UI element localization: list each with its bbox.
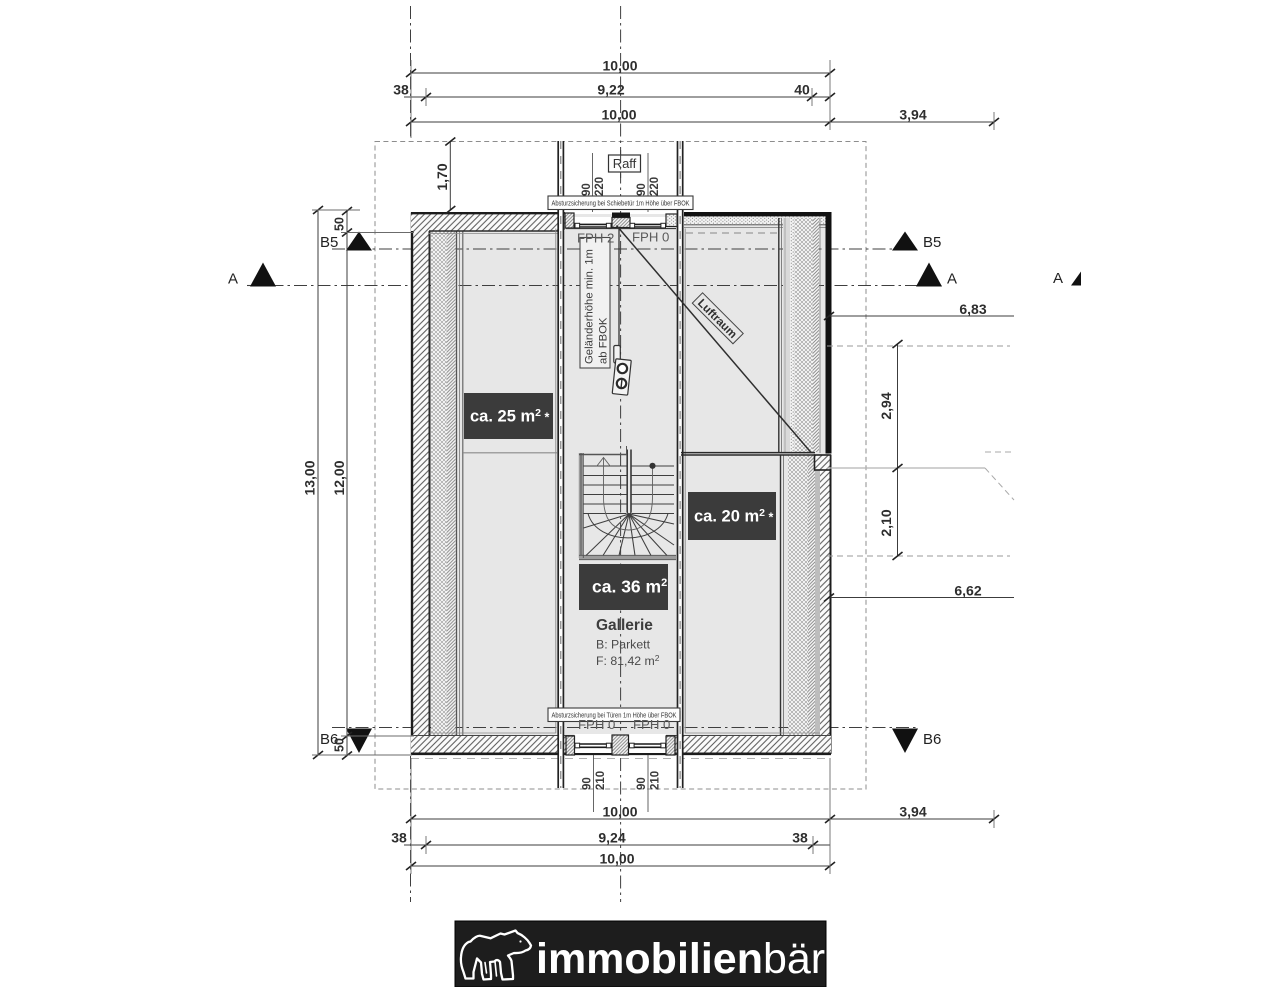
svg-text:9,24: 9,24	[598, 830, 625, 846]
svg-text:10,00: 10,00	[601, 107, 636, 123]
svg-text:F: 81,42 m2: F: 81,42 m2	[596, 653, 660, 668]
svg-text:90: 90	[636, 777, 648, 790]
svg-text:ca. 36 m2: ca. 36 m2	[592, 577, 667, 597]
svg-text:10,00: 10,00	[599, 851, 634, 867]
svg-text:FPH 0: FPH 0	[578, 717, 615, 732]
svg-text:6,83: 6,83	[959, 301, 986, 317]
svg-text:90: 90	[582, 777, 594, 790]
svg-text:B: Parkett: B: Parkett	[596, 638, 651, 652]
svg-text:9,22: 9,22	[597, 82, 624, 98]
svg-text:A: A	[947, 271, 957, 288]
svg-text:90: 90	[581, 183, 593, 196]
svg-text:B5: B5	[320, 234, 338, 251]
svg-text:220: 220	[594, 177, 606, 196]
svg-text:ab FBOK: ab FBOK	[598, 317, 610, 364]
svg-text:38: 38	[792, 830, 808, 846]
svg-text:40: 40	[794, 82, 810, 98]
svg-text:A: A	[228, 271, 238, 288]
svg-text:50: 50	[333, 738, 347, 752]
svg-text:1,70: 1,70	[434, 163, 450, 190]
svg-text:2,10: 2,10	[878, 509, 894, 536]
svg-text:13,00: 13,00	[302, 460, 318, 495]
svg-text:10,00: 10,00	[602, 58, 637, 74]
svg-text:B5: B5	[923, 234, 941, 251]
svg-text:Geländerhöhe min. 1m: Geländerhöhe min. 1m	[584, 249, 596, 364]
svg-text:3,94: 3,94	[899, 804, 926, 820]
svg-text:immobilienbär: immobilienbär	[536, 935, 825, 983]
svg-text:Raff: Raff	[613, 156, 637, 171]
svg-text:FPH 0: FPH 0	[632, 230, 669, 245]
svg-text:38: 38	[393, 82, 409, 98]
svg-text:3,94: 3,94	[899, 107, 926, 123]
svg-text:FPH 0: FPH 0	[633, 717, 670, 732]
svg-text:FPH 2: FPH 2	[577, 231, 614, 246]
svg-text:90: 90	[636, 183, 648, 196]
svg-text:Gallerie: Gallerie	[596, 617, 653, 634]
svg-text:B6: B6	[923, 731, 941, 748]
svg-text:2,94: 2,94	[878, 392, 894, 419]
svg-text:38: 38	[391, 830, 407, 846]
svg-text:12,00: 12,00	[331, 460, 347, 495]
svg-text:210: 210	[595, 771, 607, 790]
svg-text:6,62: 6,62	[954, 583, 981, 599]
svg-text:50: 50	[333, 217, 347, 231]
svg-text:Absturzsicherung bei Schiebetü: Absturzsicherung bei Schiebetür 1m Höhe …	[552, 199, 690, 208]
svg-text:210: 210	[650, 771, 662, 790]
svg-text:10,00: 10,00	[602, 804, 637, 820]
svg-text:A: A	[1053, 270, 1063, 287]
svg-text:220: 220	[649, 177, 661, 196]
